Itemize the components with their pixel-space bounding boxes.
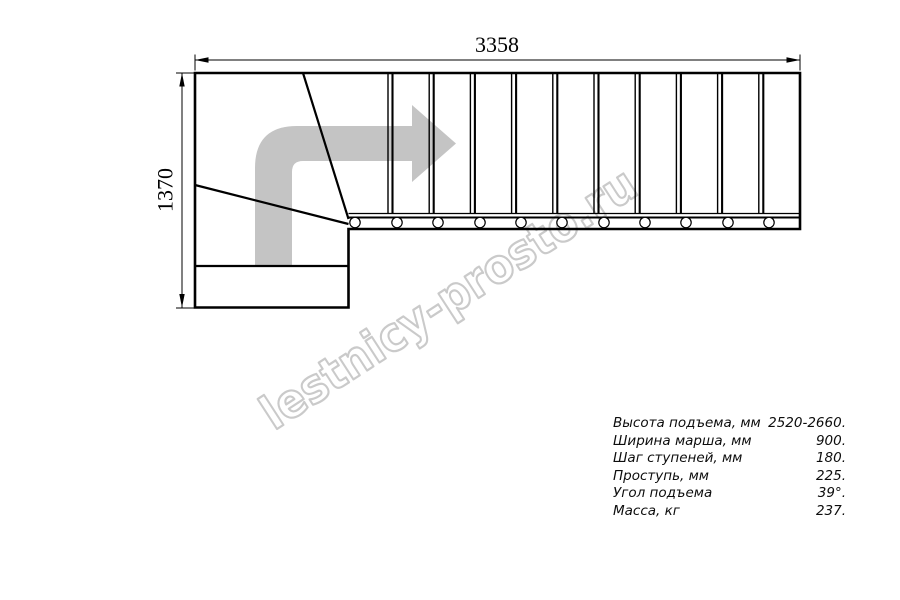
top-dimension: 3358 [195,32,800,71]
baluster-circle [350,217,360,227]
baluster-circle [599,217,609,227]
spec-row: Угол подъема 39°. [613,485,846,503]
left-dimension-value: 1370 [153,168,178,212]
baluster-circle [640,217,650,227]
baluster-circle [557,217,567,227]
spec-value: 39°. [818,485,846,503]
baluster-circle [475,217,485,227]
dimension-arrow-left [195,57,209,62]
spec-value: 2520-2660. [768,415,846,433]
spec-row: Проступь, мм 225. [613,468,846,486]
spec-label: Проступь, мм [613,468,709,486]
baluster-circle [681,217,691,227]
spec-row: Высота подъема, мм 2520-2660. [613,415,846,433]
baluster-circle [764,217,774,227]
spec-row: Масса, кг 237. [613,503,846,521]
left-dimension-extension-lines [176,73,194,308]
spec-value: 225. [816,468,846,486]
watermark-text: lestnicy-prosto.ru [251,157,647,441]
spec-row: Шаг ступеней, мм 180. [613,450,846,468]
baluster-circle [516,217,526,227]
spec-label: Масса, кг [613,503,680,521]
dimension-arrow-down [179,294,184,308]
drawing-sheet: lestnicy-prosto.ru [0,0,900,600]
spec-table: Высота подъема, мм 2520-2660. Ширина мар… [613,415,846,521]
baluster-circle [392,217,402,227]
baluster-circle [723,217,733,227]
dimension-arrow-up [179,73,184,87]
spec-label: Шаг ступеней, мм [613,450,742,468]
left-dimension: 1370 [153,73,195,308]
spec-value: 180. [816,450,846,468]
baluster-circle [433,217,443,227]
spec-row: Ширина марша, мм 900. [613,433,846,451]
spec-value: 237. [816,503,846,521]
spec-label: Ширина марша, мм [613,433,752,451]
spec-label: Угол подъема [613,485,712,503]
spec-value: 900. [816,433,846,451]
direction-arrow-icon [255,105,456,266]
baluster-circles [350,217,774,227]
top-dimension-value: 3358 [475,32,519,57]
dimension-arrow-right [787,57,801,62]
spec-label: Высота подъема, мм [613,415,761,433]
